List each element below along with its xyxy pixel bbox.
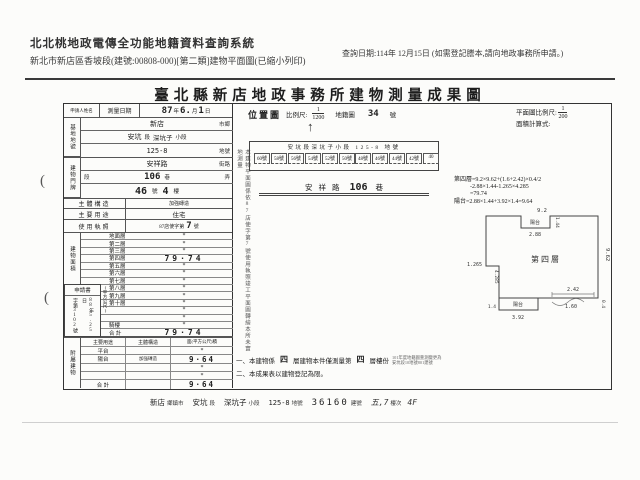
segment-label: 段 — [84, 173, 90, 181]
attached-structure — [126, 347, 171, 354]
header-divider — [25, 78, 615, 82]
application-label: 申請書 — [65, 285, 100, 296]
structure-value: 加強磚造 — [126, 199, 232, 208]
attached-use — [81, 364, 126, 371]
note-text: 層樓份 — [370, 355, 390, 365]
street-name: 安祥路 — [147, 159, 168, 169]
road-underline — [259, 193, 429, 196]
attached-structure — [126, 380, 171, 389]
location-map-label: 位置圖 — [248, 108, 281, 121]
scale-numerator: 1 — [312, 107, 324, 114]
floor-value: 79·74 — [153, 328, 233, 337]
attached-use-header: 主要用途 — [81, 338, 126, 346]
site-parcel-row: 125-8 地號 — [81, 144, 233, 157]
house-number-row: 46 號 4 樓 — [81, 184, 233, 198]
footer-item: 深坑子小段 — [224, 392, 260, 410]
floor-value: * — [153, 233, 233, 239]
attached-structure-header: 主體構造 — [126, 338, 171, 346]
license-row: 使用執照 87店使字第 7 號 — [64, 220, 232, 233]
application-date: 88年5.25日 — [80, 298, 94, 336]
calc-line: =79.74 — [454, 191, 541, 198]
house-group-right: 48號 46號 44號 42號 40 — [355, 153, 439, 164]
number-unit-label: 號 — [152, 187, 158, 195]
footer-item: 五,7樓次4F — [371, 392, 417, 410]
house-cell: 52號 — [322, 153, 338, 164]
cadastre-sheet-number: 34 — [368, 109, 379, 119]
bottom-balcony-label: 陽台 — [513, 301, 523, 308]
note-2: 二、本成果表以建物登記為限。 — [236, 368, 327, 378]
survey-form: 申請人姓名 測量日期 87 年 6. 月 1 日 基地地號 新店 市鄉 — [63, 103, 612, 390]
license-value: 87店使字第 7 號 — [126, 220, 232, 232]
attached-structure: 加強磚造 — [126, 355, 171, 363]
address-group-label: 建物門牌 — [64, 157, 81, 198]
dim-notch-width: 2.88 — [529, 232, 541, 238]
lane-number: 106 — [144, 172, 160, 182]
street-unit-label: 街路 — [219, 160, 230, 168]
cadastre-map-label: 地籍圖 — [335, 109, 355, 119]
footer-floor-handwritten: 4F — [407, 398, 417, 407]
dim-notch-depth: 1.44 — [554, 217, 560, 228]
alley-unit-label: 弄 — [224, 173, 230, 181]
dim-bottom-inner: 1.60 — [565, 304, 577, 310]
dim-left: 1.265 — [467, 262, 482, 268]
dim-left2: 4.285 — [493, 270, 499, 284]
dim-bottom-tiny: 0.4 — [600, 300, 606, 308]
license-number: 7 — [186, 221, 191, 231]
license-prefix: 87店使字第 — [159, 223, 184, 230]
margin-mark: ( — [44, 290, 49, 307]
floor-value: * — [153, 263, 233, 269]
map-scale-fraction: 1 1200 — [312, 107, 324, 121]
plan-scale-label: 平面圖比例尺: — [516, 109, 557, 116]
floor-value: * — [153, 270, 233, 276]
attached-use: 平台 — [81, 347, 126, 354]
map-parcel-header: 安坑段深坑子小段 125-8 地號 — [250, 143, 438, 151]
footer-label: 地號 — [292, 401, 303, 407]
survey-date-label: 測量日期 — [100, 104, 140, 117]
footer-label: 樓次 — [390, 401, 401, 407]
top-balcony-label: 陽台 — [530, 219, 540, 226]
lane-row: 段 106 巷 弄 — [81, 171, 233, 184]
site-group-label: 基地地號 — [64, 118, 81, 157]
house-cell: 50號 — [339, 153, 355, 164]
floor-value: * — [153, 285, 233, 291]
attached-structure — [126, 372, 171, 379]
margin-mark: ( — [40, 173, 45, 190]
survey-date-value: 87 年 6. 月 1 日 — [140, 104, 232, 117]
stamp-line: 安坑段10地號801建號 — [392, 360, 441, 365]
footer-item: 安坑段 — [193, 392, 216, 410]
footer-label: 段 — [210, 401, 216, 407]
attached-use — [81, 372, 126, 379]
address-rows: 安祥路 街路 段 106 巷 弄 46 號 4 樓 — [81, 157, 233, 198]
plan-scale-row: 平面圖比例尺: 1 200 — [516, 106, 567, 120]
map-scale-label: 比例尺: — [286, 109, 307, 119]
dim-bottom-right: 2.42 — [567, 287, 579, 293]
attached-group-label: 附屬建物 — [64, 337, 81, 388]
note-fill-floor: 四 — [355, 354, 367, 365]
house-cell: 42號 — [406, 153, 422, 164]
footer-item: 36160建號 — [312, 392, 362, 410]
attached-use: 合 計 — [81, 380, 126, 389]
street-row: 安祥路 街路 — [81, 158, 233, 171]
house-cell: 44號 — [389, 153, 405, 164]
site-city: 新店 — [150, 119, 164, 129]
calc-line: 第四層=9.2×9.62+(1.6+2.42)×0.4/2 — [454, 177, 541, 184]
floor-value: 79·74 — [153, 254, 233, 263]
dim-top: 9.2 — [537, 208, 547, 214]
footer-label: 建號 — [351, 401, 362, 407]
attached-structure — [126, 364, 171, 371]
attached-area: * — [171, 373, 233, 379]
attached-area: * — [171, 348, 233, 354]
road-name: 安祥路 — [305, 183, 346, 192]
road-unit: 巷 — [376, 183, 384, 192]
scale-denominator: 1200 — [312, 114, 324, 121]
date-day: 1 — [198, 106, 203, 116]
date-month: 6. — [180, 106, 191, 116]
floor-value: * — [153, 241, 233, 247]
note-text: 層建物本件僅測量第 — [293, 355, 352, 365]
table-row: 申請人姓名 測量日期 87 年 6. 月 1 日 — [64, 104, 232, 118]
city-unit-label: 市鄉 — [219, 120, 230, 128]
attached-area: 9·64 — [171, 355, 233, 364]
floor-value: * — [153, 307, 233, 313]
subsection-unit-label: 小段 — [176, 133, 187, 141]
house-cell: 60號 — [254, 153, 270, 164]
floor-unit-label: 樓 — [174, 187, 180, 195]
parcel-number: 125-8 — [146, 147, 167, 155]
plan-scale-block: 平面圖比例尺: 1 200 面積計算式: — [516, 106, 567, 129]
plan-scale-numerator: 1 — [558, 106, 567, 113]
house-cell: 46號 — [372, 153, 388, 164]
stamp-line: 101年度地籍圖重測變更為 — [392, 355, 441, 360]
attached-use: 陽台 — [81, 355, 126, 363]
parcel-unit-label: 地號 — [219, 147, 230, 155]
footer-handwritten: 五,7 — [371, 398, 389, 407]
attached-rows: 主要用途 主體構造 面(平方公尺)積 平台 * 陽台 加強磚造 9·64 — [81, 337, 233, 388]
site-city-row: 新店 市鄉 — [81, 118, 233, 131]
structure-row: 主體構造 加強磚造 — [64, 198, 232, 209]
floor-plan-drawing: 9.2 陽台 2.88 1.44 9.62 第四層 1.265 4.285 陽台… — [466, 204, 611, 326]
house-cell: 40 — [423, 153, 439, 164]
day-unit: 日 — [205, 107, 211, 115]
footer-label: 小段 — [249, 401, 260, 407]
license-suffix: 號 — [194, 223, 199, 230]
site-section-row: 安坑 段 深坑子 小段 — [81, 131, 233, 144]
footer-value: 深坑子 — [224, 398, 247, 407]
system-title: 北北桃地政電傳全功能地籍資料查詢系統 — [30, 35, 255, 51]
house-cell: 48號 — [355, 153, 371, 164]
use-label: 主要用途 — [64, 209, 126, 219]
page-bottom-rule — [22, 422, 618, 423]
structure-label: 主體構造 — [64, 199, 126, 208]
site-subsection: 深坑子 — [153, 132, 173, 142]
floor-value: * — [153, 278, 233, 284]
application-box: 申請書 字第3102號 88年5.25日 — [64, 284, 101, 337]
footer-value: 新店 — [150, 398, 165, 407]
dim-bottom-balcony-height: 1.4 — [488, 304, 496, 310]
footer-strip: 新店鄉鎮市 安坑段 深坑子小段 125-8地號 36160建號 五,7樓次4F — [150, 392, 590, 410]
applicant-label: 申請人姓名 — [64, 104, 100, 117]
use-value: 住宅 — [126, 209, 232, 219]
dim-bottom-balcony-width: 3.92 — [512, 315, 524, 321]
use-row: 主要用途 住宅 — [64, 209, 232, 220]
lane-unit-label: 巷 — [164, 173, 170, 181]
footer-value: 安坑 — [193, 398, 208, 407]
house-number: 46 — [135, 186, 147, 197]
note-text: 一、本建物係 — [236, 355, 275, 365]
house-cell: 56號 — [288, 153, 304, 164]
plan-scale-denominator: 200 — [558, 113, 567, 120]
location-map-header: 位置圖 比例尺: 1 1200 地籍圖 34 號 — [248, 107, 396, 121]
site-section: 安坑 — [127, 132, 141, 142]
attached-row: * — [81, 364, 233, 372]
license-label: 使用執照 — [64, 220, 126, 232]
floor-number: 4 — [163, 186, 169, 197]
map-houses: 60號 58號 56號 54號 52號 50號 48號 46號 44號 42號 … — [250, 151, 438, 164]
floor-plan-title: 第四層 — [531, 254, 561, 264]
dim-right: 9.62 — [604, 248, 610, 261]
area-formula-label: 面積計算式: — [516, 120, 567, 129]
floor-value: * — [153, 300, 233, 306]
attached-row: * — [81, 372, 233, 380]
year-unit: 年 — [174, 107, 180, 115]
month-unit: 月 — [192, 107, 198, 115]
query-date: 查詢日期:114年 12月15日 (如需登記謄本,請向地政事務所申請。) — [342, 48, 563, 59]
attached-area: 9·64 — [171, 380, 233, 389]
house-cell: 58號 — [271, 153, 287, 164]
footer-item: 新店鄉鎮市 — [150, 392, 184, 410]
house-group-left: 60號 58號 56號 54號 52號 50號 — [254, 153, 355, 164]
north-arrow-icon: ↑ — [307, 119, 314, 135]
footer-value: 125-8 — [269, 399, 290, 407]
date-year: 87 — [162, 106, 173, 116]
footer-label: 鄉鎮市 — [167, 401, 184, 407]
floor-value: * — [153, 293, 233, 299]
note-fill-floors: 四 — [278, 354, 290, 365]
building-info-table: 申請人姓名 測量日期 87 年 6. 月 1 日 基地地號 新店 市鄉 — [64, 104, 233, 388]
attached-total-row: 合 計 9·64 — [81, 380, 233, 389]
house-cell: 54號 — [305, 153, 321, 164]
floor-value: * — [153, 315, 233, 321]
sheet-unit-label: 號 — [390, 109, 397, 119]
footer-item: 125-8地號 — [269, 392, 303, 410]
location-map: 安坑段深坑子小段 125-8 地號 60號 58號 56號 54號 52號 50… — [249, 141, 439, 171]
site-rows: 新店 市鄉 安坑 段 深坑子 小段 125-8 地號 — [81, 118, 233, 157]
area-unit-label: (平方公尺) — [102, 285, 108, 337]
document-subtitle: 新北市新店區香坡段(建號:00808-000)[第二類]建物平面圖(已縮小列印) — [30, 54, 305, 67]
area-group-label: 建物面積 — [64, 233, 81, 284]
application-number: 字第3102號 — [71, 298, 78, 336]
note-1: 一、本建物係 四 層建物本件僅測量第 四 層樓份 101年度地籍圖重測變更為 安… — [236, 354, 441, 365]
document-sheet: 北北桃地政電傳全功能地籍資料查詢系統 新北市新店區香坡段(建號:00808-00… — [0, 0, 640, 480]
attached-row: 陽台 加強磚造 9·64 — [81, 355, 233, 364]
attached-area: * — [171, 365, 233, 371]
plan-scale-fraction: 1 200 — [558, 106, 567, 120]
section-unit-label: 段 — [144, 133, 150, 141]
footer-value: 36160 — [312, 398, 349, 408]
attached-area-header: 面(平方公尺)積 — [171, 339, 233, 345]
page-title: 臺北縣新店地政事務所建物測量成果圖 — [0, 84, 640, 105]
area-calculation: 第四層=9.2×9.62+(1.6+2.42)×0.4/2 -2.88×1.44… — [454, 177, 541, 206]
road-number: 106 — [349, 182, 367, 193]
calc-line: -2.88×1.44-1.265×4.285 — [454, 184, 541, 191]
remeasure-stamp: 101年度地籍圖重測變更為 安坑段10地號801建號 — [392, 355, 441, 365]
